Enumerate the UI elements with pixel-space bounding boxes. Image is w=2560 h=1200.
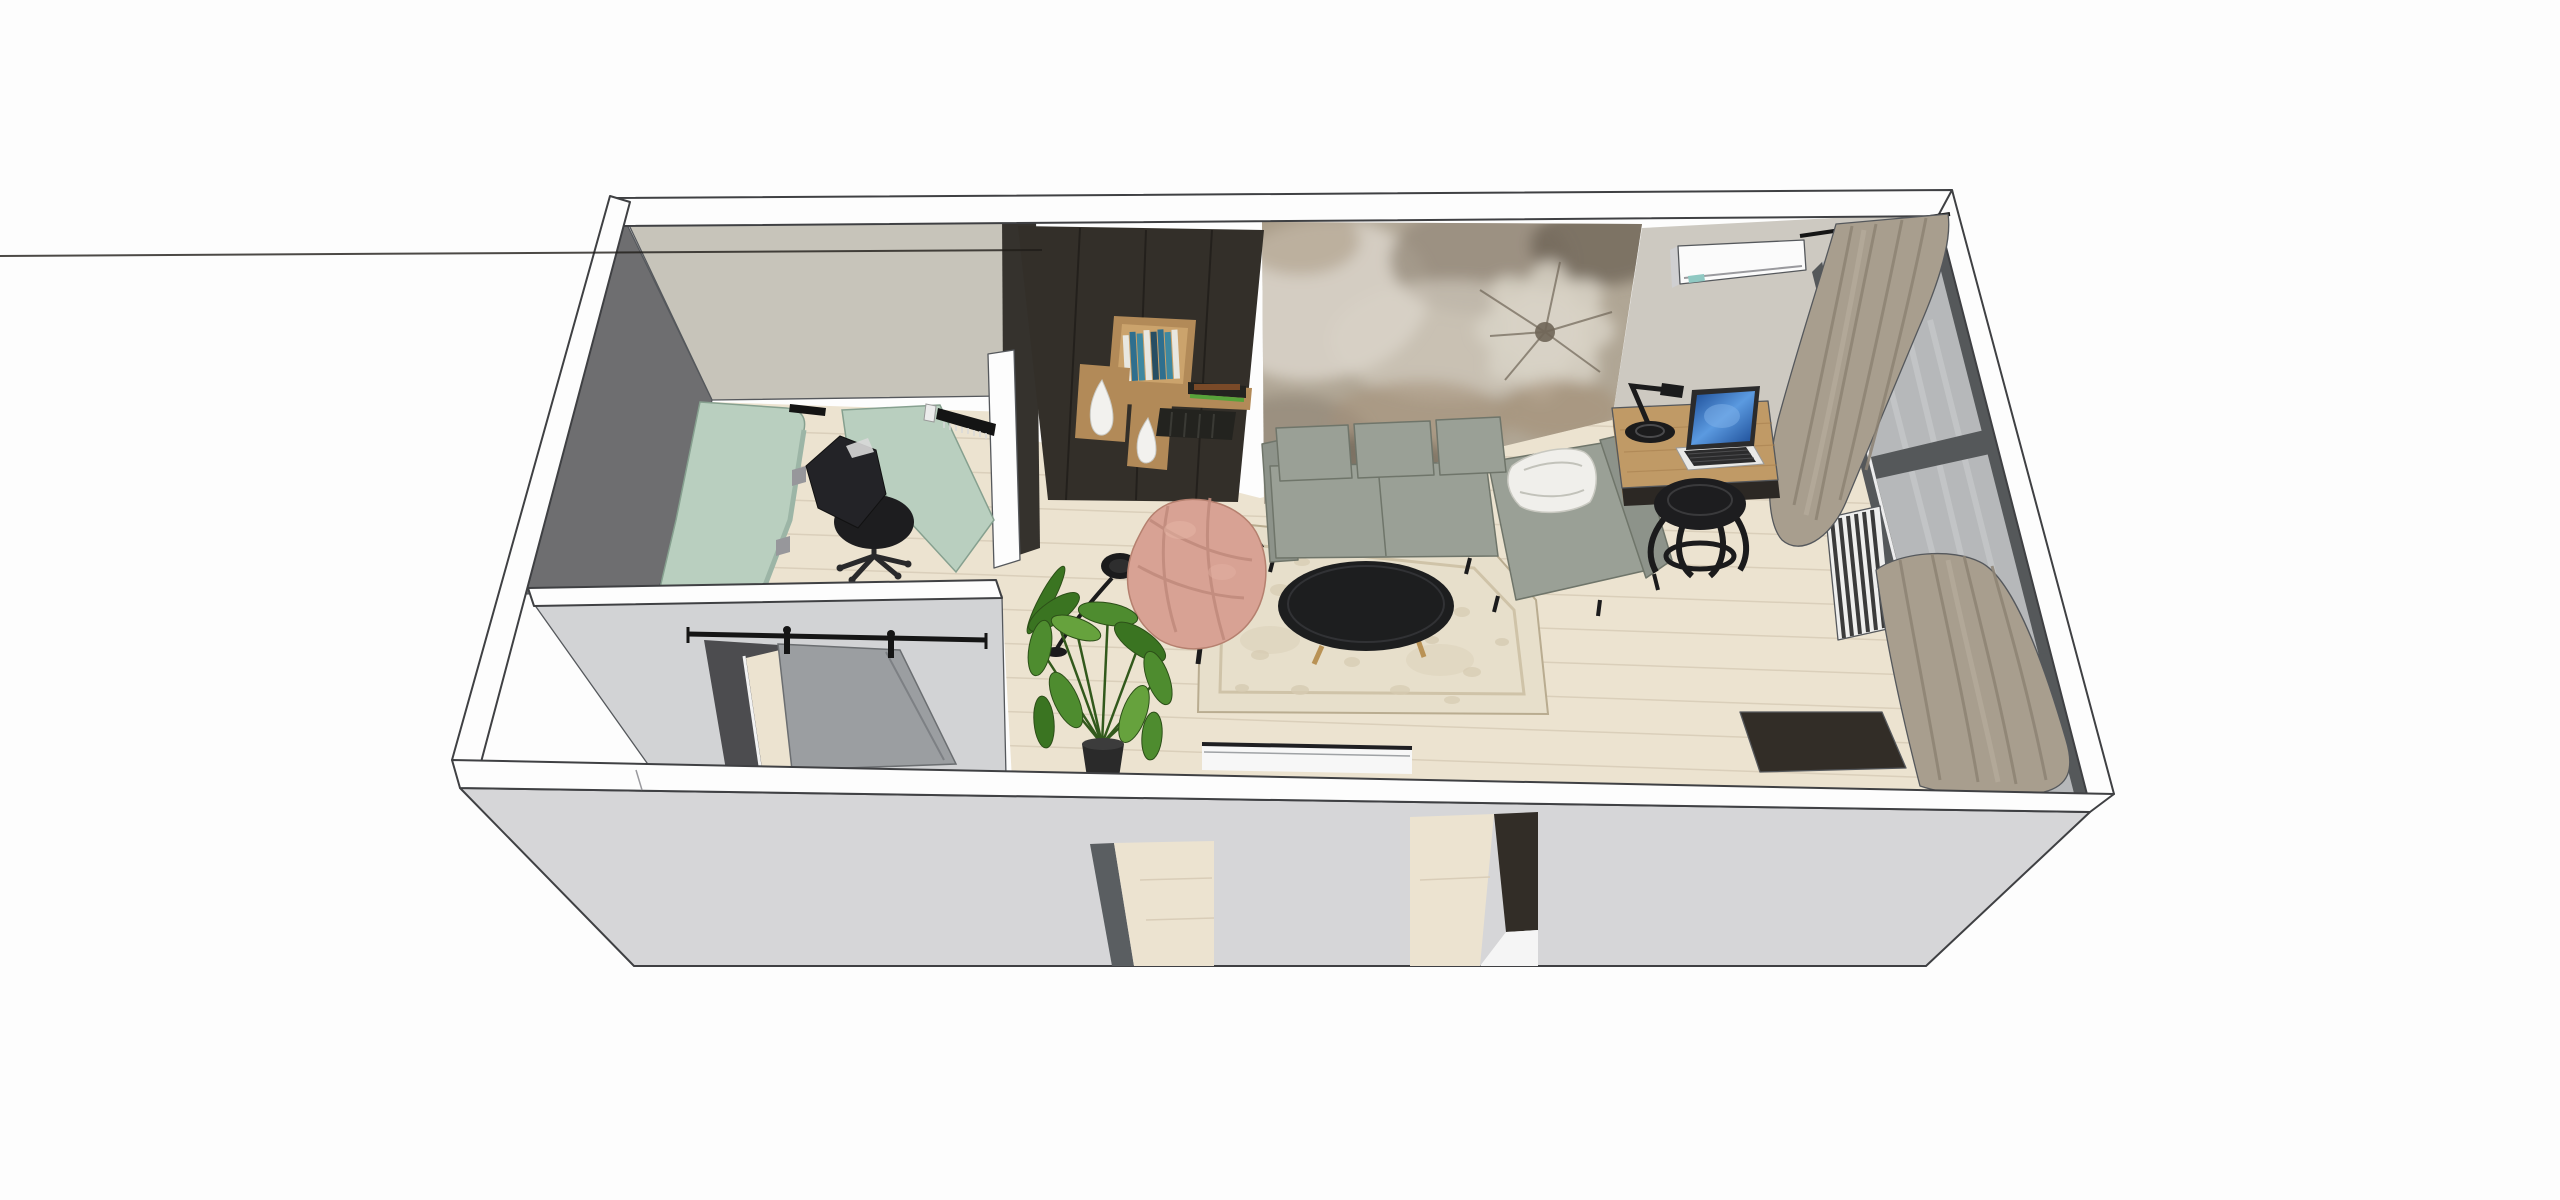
front-wall bbox=[452, 760, 2114, 966]
floorplan-3d-render bbox=[0, 0, 2560, 1200]
front-wall-face bbox=[460, 788, 2090, 966]
brown-book-spine bbox=[1194, 384, 1240, 390]
front-doorway-right bbox=[1410, 812, 1538, 966]
door-roller bbox=[783, 626, 791, 634]
wall-roll-holder bbox=[924, 404, 936, 422]
sofa-back-cushion bbox=[1276, 425, 1352, 481]
armchair-highlight bbox=[1164, 521, 1196, 539]
render-viewport bbox=[0, 0, 2560, 1200]
partition-wall-top-edge bbox=[988, 350, 1020, 568]
floor-threshold bbox=[1202, 742, 1412, 774]
armchair-body bbox=[1128, 499, 1266, 648]
sideboard bbox=[1740, 712, 1906, 772]
sofa-back-cushion bbox=[1436, 417, 1506, 475]
doorway-floor bbox=[1410, 814, 1494, 966]
dark-books-niche bbox=[1156, 408, 1236, 440]
plant-pot-rim bbox=[1082, 738, 1124, 750]
table-top bbox=[1278, 561, 1454, 651]
screen-glow bbox=[1704, 404, 1740, 428]
door-roller bbox=[887, 630, 895, 638]
sofa-back-cushion bbox=[1354, 421, 1434, 478]
armchair-highlight bbox=[1208, 564, 1236, 580]
